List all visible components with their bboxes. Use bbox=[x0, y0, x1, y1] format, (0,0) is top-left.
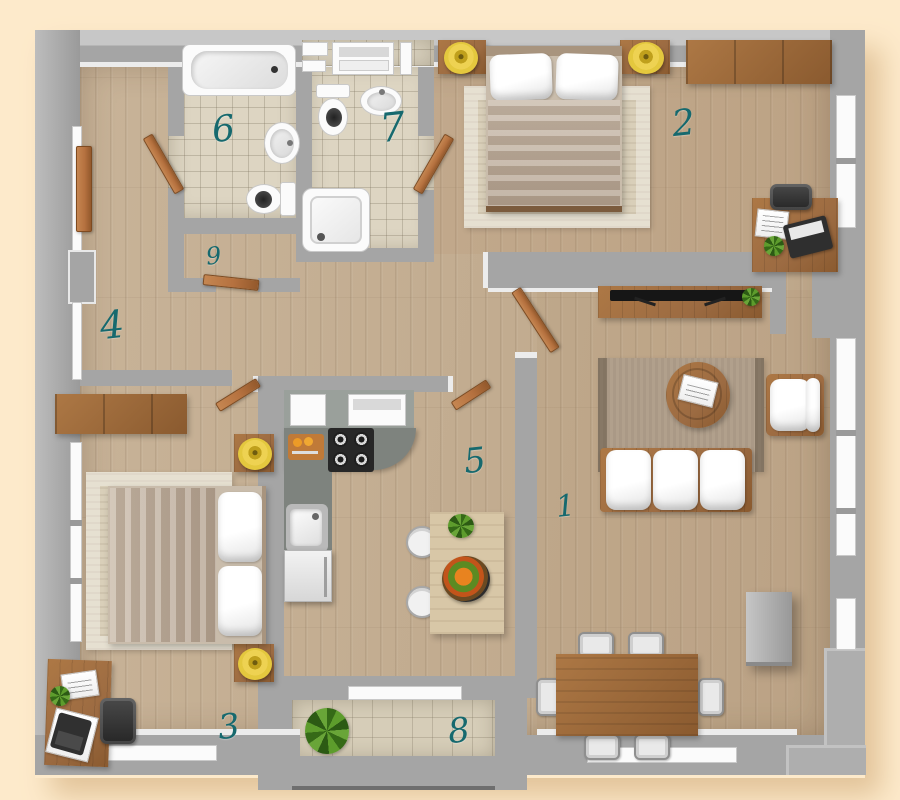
bedroom2-bed bbox=[486, 46, 622, 212]
sink-faucet bbox=[312, 513, 319, 520]
dining-chair bbox=[698, 678, 724, 716]
dining-table bbox=[556, 654, 698, 736]
room-label-9: 9 bbox=[205, 243, 223, 268]
shower-drain bbox=[317, 233, 325, 241]
balcony-door bbox=[348, 686, 462, 700]
room-label-3: 3 bbox=[216, 709, 241, 745]
trim-kitchen-cap-right bbox=[448, 376, 453, 392]
shower bbox=[302, 188, 370, 252]
salad-bowl bbox=[442, 556, 490, 602]
toilet-hole bbox=[255, 191, 272, 208]
plant bbox=[448, 514, 474, 538]
bathroom7-toilet-tank bbox=[316, 84, 350, 98]
toilet-hole bbox=[326, 108, 342, 127]
window-mullion bbox=[836, 158, 856, 164]
bath7-shelf bbox=[302, 60, 326, 72]
room-label-7: 7 bbox=[378, 107, 407, 149]
pouf bbox=[444, 42, 478, 74]
dining-chair bbox=[584, 734, 620, 760]
window-mullion bbox=[836, 508, 856, 514]
pouf bbox=[628, 42, 664, 74]
room-label-4: 4 bbox=[98, 305, 126, 345]
room-label-1: 1 bbox=[554, 491, 576, 523]
room-label-6: 6 bbox=[210, 111, 237, 149]
column bbox=[746, 592, 792, 666]
window-right-lower bbox=[836, 598, 856, 650]
stove-burner bbox=[333, 452, 348, 467]
stove bbox=[328, 428, 374, 472]
washer-panel bbox=[339, 47, 389, 57]
trim-livwall-cap bbox=[515, 352, 537, 358]
plant bbox=[764, 236, 784, 256]
stove-burner bbox=[354, 432, 369, 447]
wall-bath7-right-top bbox=[418, 62, 434, 136]
bed-pillow bbox=[555, 53, 619, 101]
cutting-board bbox=[288, 434, 324, 460]
window-left-mid bbox=[72, 302, 82, 380]
bed-blanket bbox=[110, 488, 216, 642]
bathroom6-toilet-tank bbox=[280, 182, 296, 216]
wall-corner-foot bbox=[786, 745, 866, 775]
balcony-plant bbox=[305, 708, 349, 754]
orange-fruit bbox=[293, 438, 302, 447]
bath7-shelf bbox=[302, 42, 328, 56]
kitchen-cabinet bbox=[290, 394, 326, 426]
bathtub-drain bbox=[271, 66, 278, 73]
wall-balcony-bottom bbox=[292, 756, 495, 790]
sink-faucet bbox=[379, 89, 385, 95]
stove-burner bbox=[354, 452, 369, 467]
knife bbox=[292, 451, 318, 454]
cabinet-shelf bbox=[353, 399, 401, 410]
wall-living-kitchen bbox=[515, 358, 537, 698]
bathroom6-toilet-bowl bbox=[246, 184, 282, 214]
wall-pilaster-left bbox=[68, 250, 96, 304]
office-chair bbox=[770, 184, 812, 210]
window-mullion bbox=[70, 520, 82, 526]
window-bottom-room3 bbox=[90, 745, 217, 761]
armchair-back bbox=[806, 378, 820, 432]
room-label-2: 2 bbox=[670, 105, 697, 143]
tv bbox=[610, 290, 750, 301]
bathroom7-toilet-bowl bbox=[318, 98, 348, 136]
wardrobe bbox=[55, 394, 187, 434]
bathroom6-sink bbox=[264, 122, 300, 164]
sofa-seat bbox=[700, 450, 745, 510]
window-mullion bbox=[70, 578, 82, 584]
plant bbox=[742, 288, 760, 306]
wall-bath6-bottom bbox=[168, 218, 300, 234]
washing-machine bbox=[332, 42, 394, 75]
room-label-5: 5 bbox=[462, 443, 487, 479]
wardrobe bbox=[686, 40, 832, 84]
wall-room9-bottom-right bbox=[258, 278, 300, 292]
washer-lid bbox=[339, 60, 389, 71]
bed-pillow bbox=[489, 53, 553, 101]
bath7-cabinet bbox=[400, 42, 412, 75]
office-chair bbox=[100, 698, 136, 744]
kitchen-sink bbox=[286, 504, 328, 552]
wall-divider-bed2-living bbox=[488, 252, 772, 288]
pouf bbox=[238, 438, 272, 470]
bed-footboard bbox=[486, 206, 622, 212]
laptop-screen bbox=[788, 220, 824, 240]
armchair bbox=[770, 379, 810, 431]
window-right-living bbox=[836, 338, 856, 556]
orange-fruit bbox=[304, 437, 313, 446]
bed-pillow bbox=[218, 492, 262, 562]
wall-room3-top bbox=[80, 370, 232, 386]
entrance-door-leaf bbox=[76, 146, 92, 232]
bed-headboard bbox=[262, 486, 266, 644]
bedroom3-bed bbox=[108, 486, 266, 644]
pouf bbox=[238, 648, 272, 680]
sofa-seat bbox=[653, 450, 698, 510]
balcony-edge bbox=[292, 786, 495, 790]
window-mullion bbox=[836, 430, 856, 436]
trim-divider-cap bbox=[483, 252, 488, 288]
sink-faucet bbox=[287, 140, 293, 146]
sofa-seat bbox=[606, 450, 651, 510]
floor-plan: 1 2 3 4 5 6 7 8 9 bbox=[0, 0, 900, 800]
window-left-room3 bbox=[70, 442, 82, 642]
laptop-keyboard bbox=[55, 730, 84, 751]
plant bbox=[50, 686, 70, 706]
bed-pillow bbox=[218, 566, 262, 636]
room-label-8: 8 bbox=[446, 713, 471, 749]
kitchen-cabinet bbox=[348, 394, 406, 426]
wall-balcony-left bbox=[258, 690, 292, 790]
wall-balcony-right bbox=[495, 690, 527, 790]
bathtub bbox=[182, 44, 296, 96]
bed-blanket bbox=[488, 100, 620, 206]
dining-chair bbox=[634, 734, 670, 760]
stove-burner bbox=[333, 432, 348, 447]
fridge bbox=[284, 550, 332, 602]
fridge-handle bbox=[324, 557, 327, 597]
